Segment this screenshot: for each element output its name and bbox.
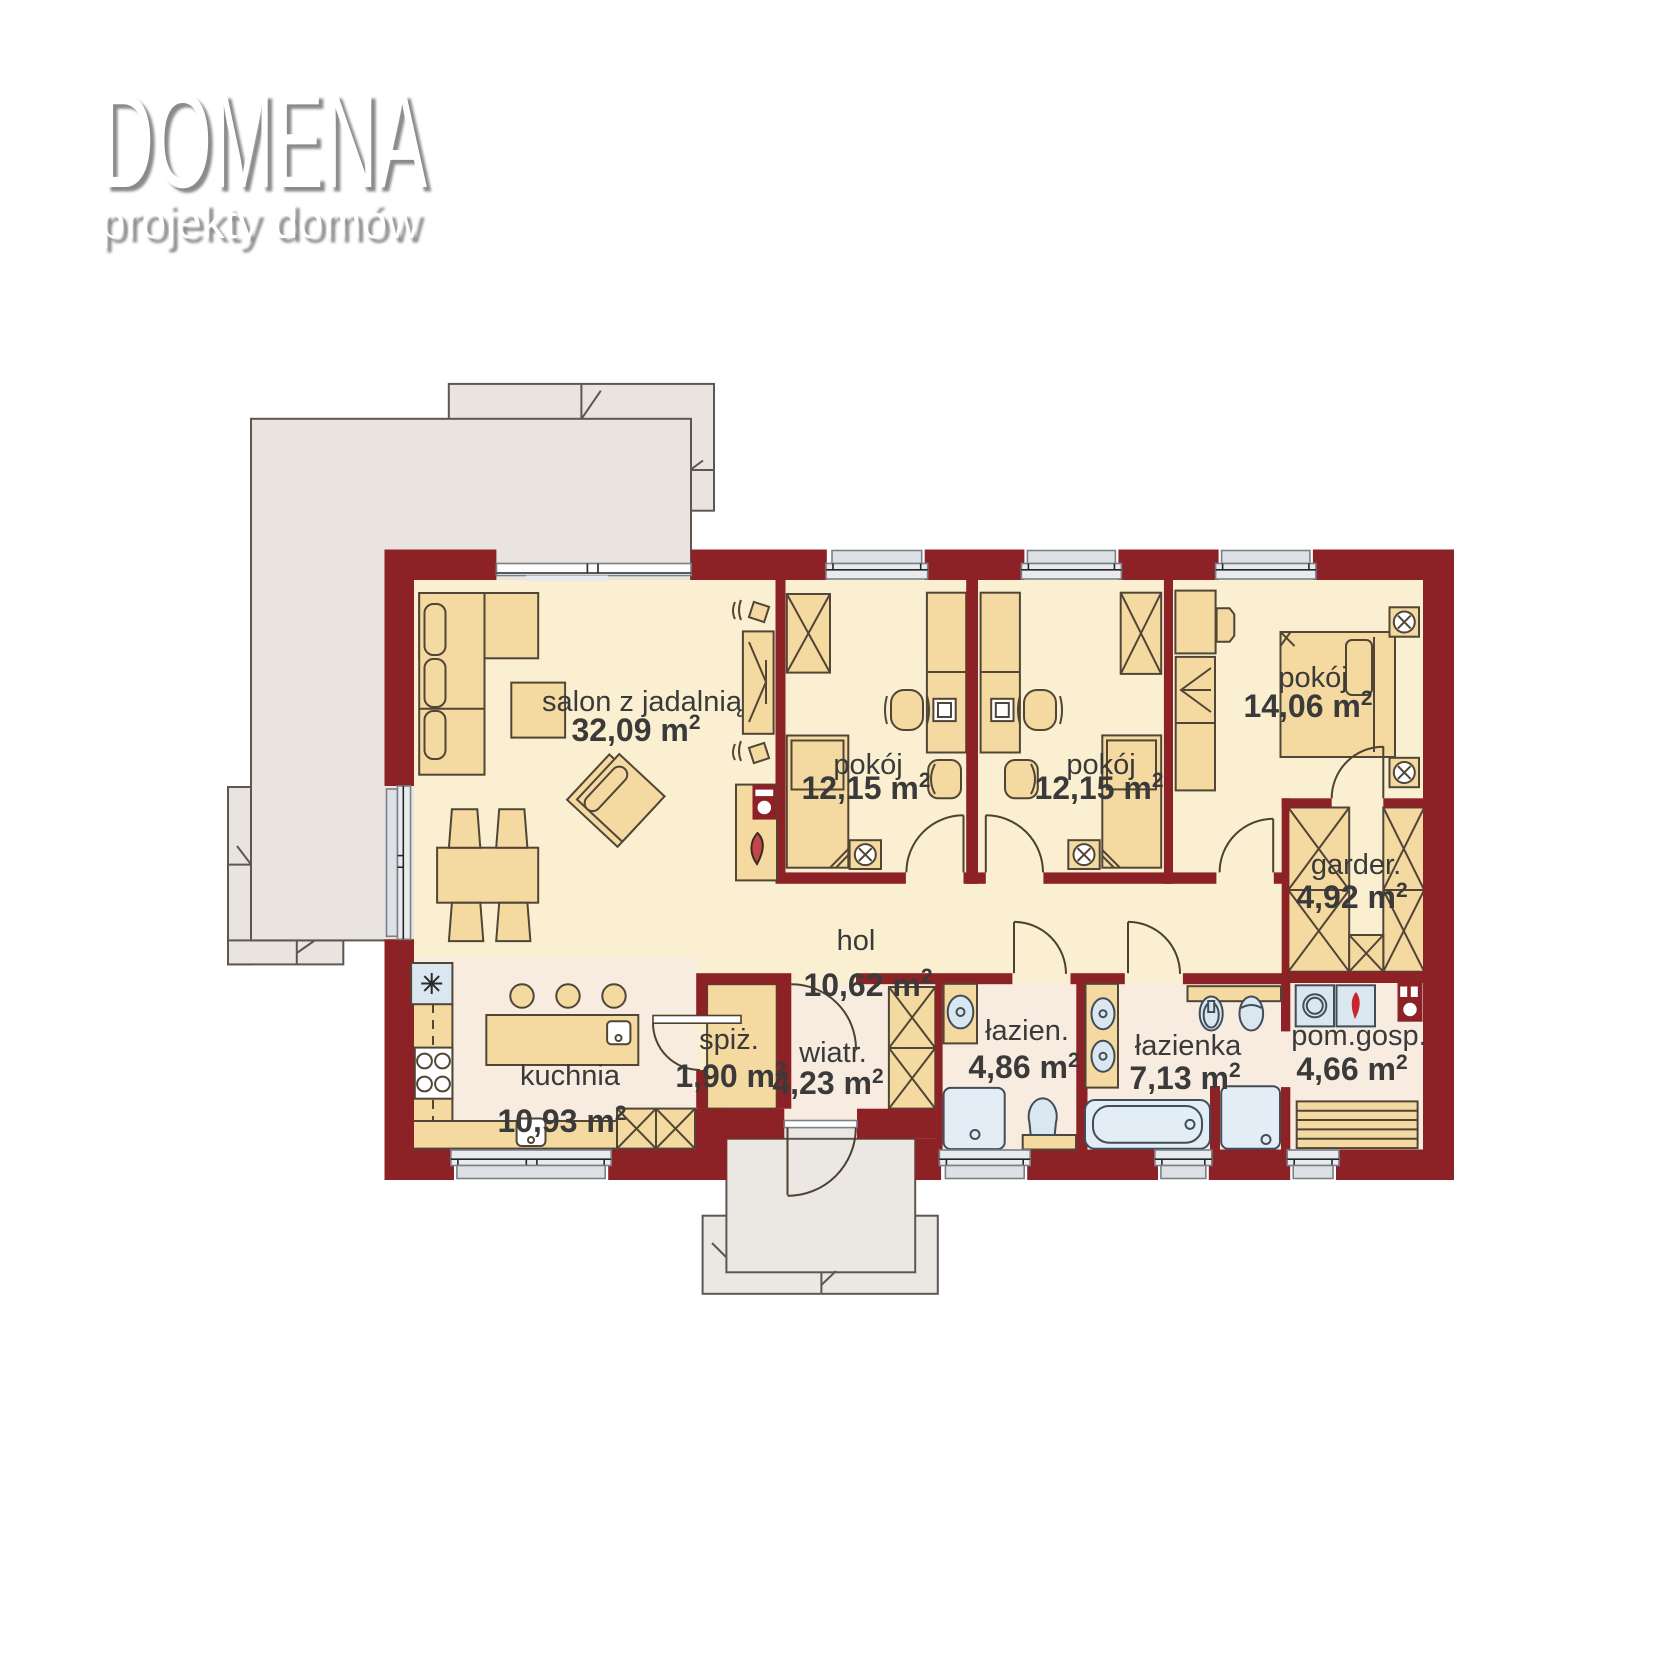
svg-text:łazienka: łazienka — [1135, 1030, 1242, 1062]
svg-text:4,66 m2: 4,66 m2 — [1296, 1051, 1407, 1087]
svg-text:hol: hol — [837, 925, 876, 957]
svg-text:projekty domów: projekty domów — [100, 195, 421, 248]
svg-text:32,09 m2: 32,09 m2 — [571, 711, 700, 748]
svg-text:spiż.: spiż. — [699, 1024, 759, 1056]
svg-text:7,13 m2: 7,13 m2 — [1129, 1059, 1240, 1096]
svg-text:14,06 m2: 14,06 m2 — [1243, 687, 1372, 724]
svg-text:1,90 m2: 1,90 m2 — [675, 1058, 786, 1094]
svg-text:12,15 m2: 12,15 m2 — [801, 769, 930, 806]
svg-text:łazien.: łazien. — [985, 1015, 1069, 1047]
svg-text:garder.: garder. — [1311, 849, 1401, 881]
svg-text:10,62 m2: 10,62 m2 — [803, 965, 932, 1003]
svg-text:12,15 m2: 12,15 m2 — [1034, 769, 1163, 806]
svg-text:kuchnia: kuchnia — [520, 1060, 621, 1092]
svg-text:4,92 m2: 4,92 m2 — [1296, 879, 1407, 915]
svg-text:pom.gosp.: pom.gosp. — [1291, 1020, 1426, 1052]
svg-text:4,23 m2: 4,23 m2 — [772, 1065, 883, 1101]
svg-text:10,93 m2: 10,93 m2 — [497, 1102, 626, 1139]
svg-text:DOMENA: DOMENA — [100, 65, 427, 216]
svg-text:4,86 m2: 4,86 m2 — [968, 1049, 1079, 1085]
